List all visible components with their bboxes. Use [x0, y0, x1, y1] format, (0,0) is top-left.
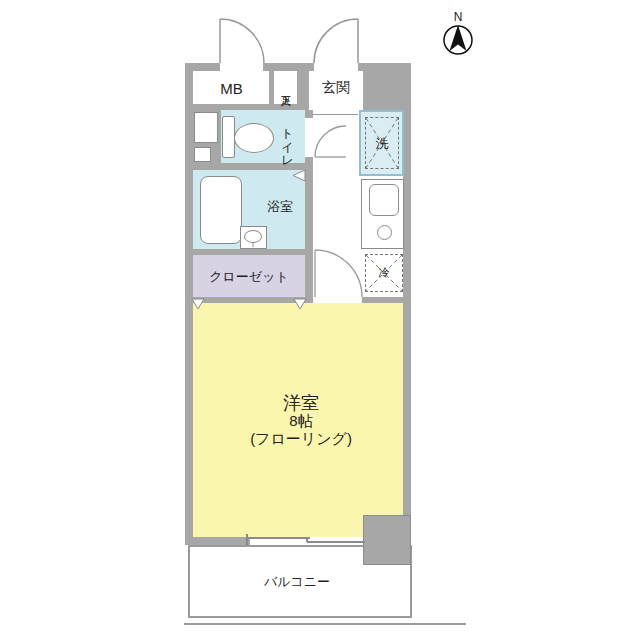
- wall-right: [403, 110, 411, 520]
- pipe-shaft-box-small: [194, 147, 211, 162]
- pipe-shaft-box: [194, 112, 218, 143]
- mb-door: [220, 19, 264, 63]
- wall-bottom-left: [185, 537, 250, 545]
- mb-label: MB: [194, 79, 269, 97]
- wall-top-right: [358, 63, 411, 71]
- entrance-step-line: [313, 114, 358, 115]
- shoe-box-label: 下足入: [275, 72, 296, 104]
- balcony-label: バルコニー: [262, 574, 332, 589]
- western-room-door: [315, 250, 362, 297]
- western-room-label-line3: (フローリング): [238, 431, 364, 448]
- western-room-label-line1: 洋室: [253, 393, 349, 412]
- wall-top-middle: [263, 63, 314, 71]
- wall-room-top-right: [362, 297, 411, 303]
- kitchen-sink: [369, 184, 399, 216]
- kitchen-burner: [377, 225, 392, 240]
- washbasin-bowl: [244, 230, 262, 243]
- wall-hall-left: [305, 157, 313, 303]
- wall-toilet-stub: [305, 110, 313, 118]
- wall-bath-closet-divider: [193, 249, 305, 255]
- wall-mb-divider: [269, 71, 274, 104]
- wall-closet-bottom: [193, 297, 313, 303]
- toilet-bowl: [234, 123, 274, 153]
- wall-shoe-divider: [297, 71, 309, 104]
- bathroom-label: 浴室: [262, 199, 298, 214]
- compass-north-label: N: [450, 10, 466, 24]
- wall-top-left: [185, 63, 220, 71]
- bathtub: [200, 176, 242, 244]
- refrigerator-label: 冷: [377, 266, 391, 279]
- laundry-label: 洗: [374, 136, 390, 151]
- entrance-label: 玄関: [309, 79, 363, 97]
- wall-left: [185, 71, 193, 545]
- north-compass-icon: [444, 25, 472, 54]
- floor-plan: N MB 下足入 玄関 トイレ 洗 浴室 冷 クローゼット 洋室 8帖 (フロー…: [0, 0, 640, 639]
- ground-line: [184, 623, 466, 625]
- western-room-label-line2: 8帖: [253, 413, 349, 429]
- wall-column: [363, 515, 411, 565]
- closet-label: クローゼット: [203, 270, 295, 284]
- wall-toilet-bath-divider: [193, 163, 313, 170]
- hall-door: [315, 126, 346, 157]
- wall-corner-block: [363, 71, 411, 110]
- entrance-door: [314, 19, 358, 63]
- toilet-label: トイレ: [279, 117, 295, 161]
